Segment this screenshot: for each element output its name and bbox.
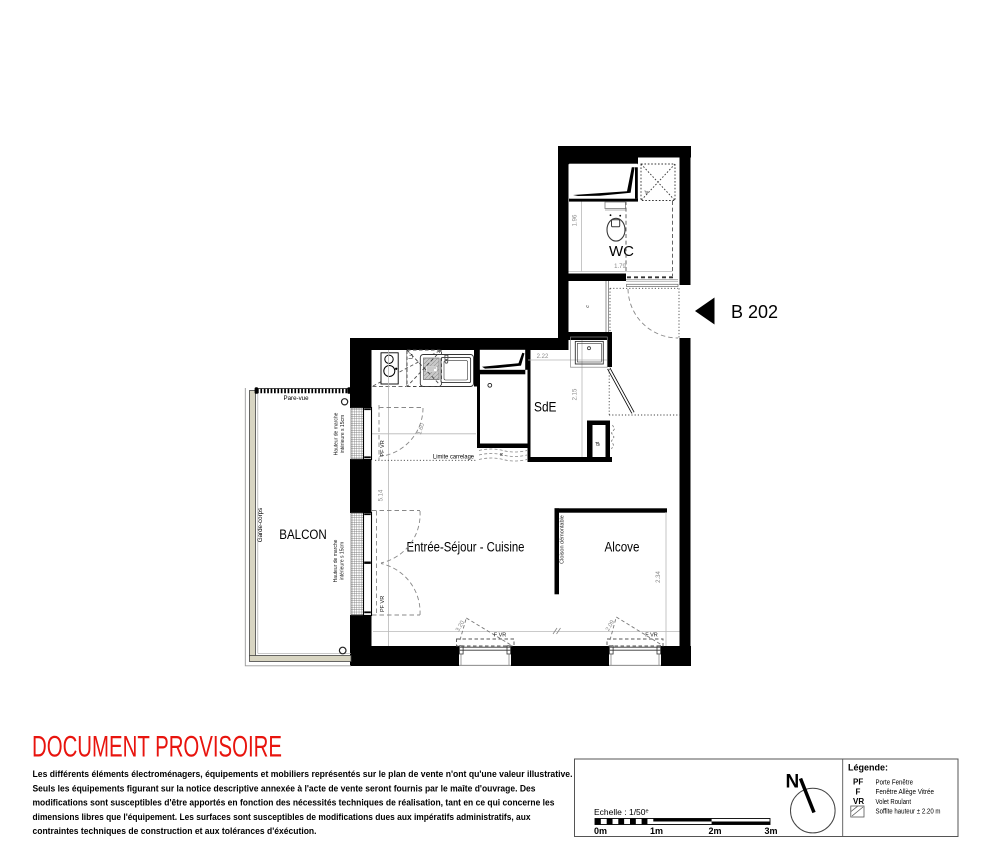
svg-text:Pare-vue: Pare-vue [283, 395, 309, 402]
svg-text:PF VR: PF VR [380, 596, 386, 612]
svg-text:VR: VR [853, 797, 864, 806]
svg-text:3.20: 3.20 [455, 619, 466, 633]
svg-text:Alcove: Alcove [605, 540, 640, 555]
svg-text:Seuls les équipements figurant: Seuls les équipements figurant sur la no… [33, 783, 536, 794]
svg-text:Fenêtre Allège Vitrée: Fenêtre Allège Vitrée [876, 789, 935, 796]
svg-text:0m: 0m [594, 826, 607, 836]
svg-text:2.15: 2.15 [573, 388, 579, 400]
svg-text:Hauteur de marche: Hauteur de marche [333, 539, 339, 582]
svg-text:F VR: F VR [494, 633, 507, 639]
svg-text:gt: gt [595, 441, 601, 446]
svg-text:sf: sf [644, 190, 649, 194]
svg-text:F VR: F VR [645, 633, 658, 639]
svg-text:1.79: 1.79 [614, 264, 626, 270]
svg-text:PF: PF [853, 778, 863, 787]
svg-text:c: c [585, 304, 592, 308]
svg-text:5.14: 5.14 [379, 489, 385, 501]
svg-text:2m: 2m [709, 826, 722, 836]
svg-text:Les différents éléments électr: Les différents éléments électroménagers,… [33, 769, 573, 780]
svg-text:Soffite hauteur ± 2.20 m: Soffite hauteur ± 2.20 m [876, 809, 941, 816]
svg-text:BALCON: BALCON [279, 527, 327, 542]
svg-text:SdE: SdE [534, 399, 557, 415]
svg-text:modifications sont susceptible: modifications sont susceptibles d'être a… [33, 798, 555, 809]
svg-text:Volet Roulant: Volet Roulant [876, 799, 912, 806]
svg-text:Hauteur de marche: Hauteur de marche [333, 412, 339, 455]
svg-text:F: F [856, 787, 861, 796]
svg-text:Echelle : 1/50e: Echelle : 1/50e [594, 807, 649, 817]
svg-text:Garde-corps: Garde-corps [257, 508, 264, 542]
svg-text:intérieure s 15cm: intérieure s 15cm [340, 415, 346, 453]
svg-text:1m: 1m [650, 826, 663, 836]
svg-text:R: R [499, 452, 504, 456]
svg-text:Cloison démontable: Cloison démontable [560, 515, 566, 564]
svg-text:WC: WC [609, 243, 634, 260]
svg-text:dimensions libres que l'équipe: dimensions libres que l'équipement. Les … [33, 812, 532, 823]
svg-text:contraintes techniques de cons: contraintes techniques de construction e… [33, 826, 317, 837]
svg-text:1.96: 1.96 [573, 214, 579, 226]
svg-text:B 202: B 202 [731, 302, 778, 322]
svg-text:2.22: 2.22 [537, 354, 549, 360]
svg-text:Limite carrelage: Limite carrelage [433, 454, 474, 461]
svg-text:Entrée-Séjour - Cuisine: Entrée-Séjour - Cuisine [407, 540, 525, 555]
svg-text:DOCUMENT PROVISOIRE: DOCUMENT PROVISOIRE [32, 731, 282, 764]
svg-text:Lv: Lv [409, 353, 415, 359]
svg-text:Porte Fenêtre: Porte Fenêtre [876, 779, 914, 786]
svg-text:3m: 3m [765, 826, 778, 836]
svg-text:N: N [786, 772, 800, 793]
svg-text:2.34: 2.34 [656, 571, 662, 583]
svg-text:PF VR: PF VR [380, 440, 386, 456]
svg-text:Légende:: Légende: [848, 763, 888, 773]
svg-text:intérieure s 15cm: intérieure s 15cm [340, 542, 346, 580]
